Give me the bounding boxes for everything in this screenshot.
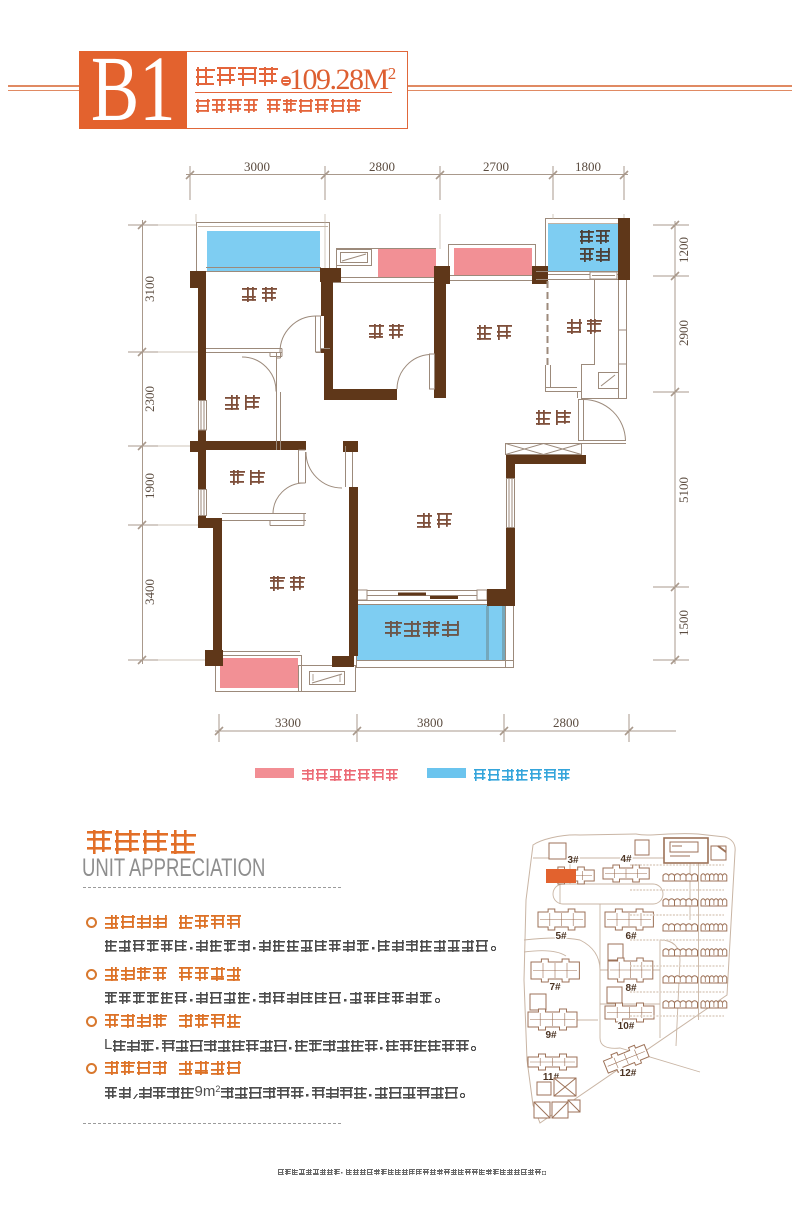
svg-text:9#: 9# [545, 1030, 557, 1041]
svg-text:2700: 2700 [483, 159, 509, 174]
svg-text:5100: 5100 [676, 477, 691, 503]
svg-text:7#: 7# [549, 982, 561, 993]
svg-text:2900: 2900 [676, 320, 691, 346]
svg-text:3100: 3100 [142, 276, 157, 302]
svg-text:3800: 3800 [417, 715, 443, 730]
svg-text:2300: 2300 [142, 386, 157, 412]
svg-text:4#: 4# [620, 854, 632, 865]
svg-text:5#: 5# [555, 931, 567, 942]
svg-text:10#: 10# [618, 1021, 635, 1032]
svg-text:1800: 1800 [575, 159, 601, 174]
svg-text:12#: 12# [620, 1068, 637, 1079]
svg-text:2800: 2800 [369, 159, 395, 174]
svg-text:3300: 3300 [275, 715, 301, 730]
svg-text:3#: 3# [567, 855, 579, 866]
svg-text:1900: 1900 [142, 473, 157, 499]
svg-text:1200: 1200 [676, 237, 691, 263]
svg-text:1500: 1500 [676, 610, 691, 636]
svg-text:3000: 3000 [244, 159, 270, 174]
svg-text:3400: 3400 [142, 579, 157, 605]
svg-text:2800: 2800 [553, 715, 579, 730]
